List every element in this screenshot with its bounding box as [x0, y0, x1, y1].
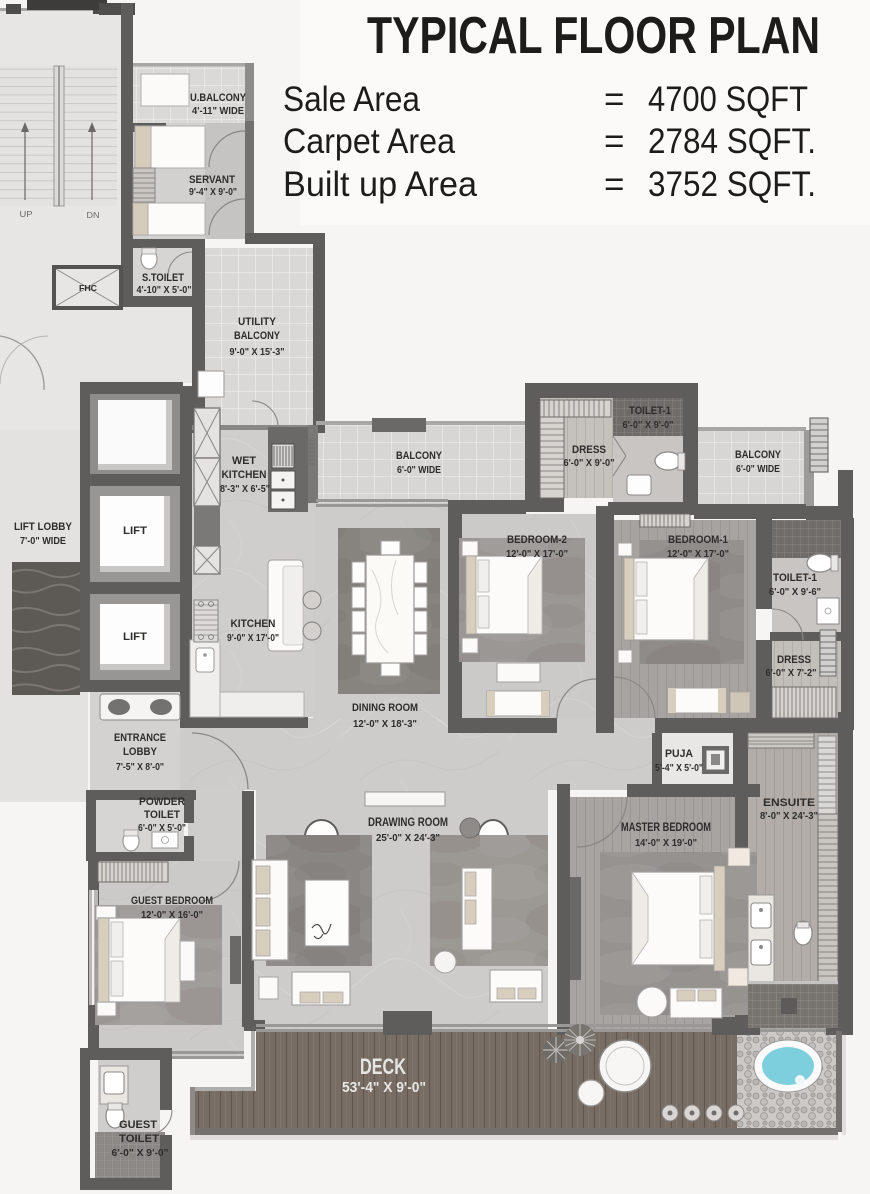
svg-text:DECK: DECK [360, 1054, 406, 1079]
svg-text:LIFT: LIFT [123, 631, 147, 643]
svg-text:5'-4" X 5'-0": 5'-4" X 5'-0" [655, 763, 703, 774]
svg-text:Carpet Area: Carpet Area [283, 122, 455, 161]
svg-text:POWDER: POWDER [139, 796, 185, 808]
svg-text:3752 SQFT.: 3752 SQFT. [648, 165, 816, 204]
svg-text:6'-0" X 7'-2": 6'-0" X 7'-2" [766, 668, 817, 679]
svg-text:6'-0" X 9'-0": 6'-0" X 9'-0" [564, 458, 615, 469]
svg-text:6'-0" X 5'-0": 6'-0" X 5'-0" [138, 823, 186, 834]
svg-text:PUJA: PUJA [665, 748, 693, 760]
svg-text:8'-3" X 6'-5": 8'-3" X 6'-5" [220, 484, 270, 495]
svg-text:9'-4" X 9'-0": 9'-4" X 9'-0" [189, 187, 237, 198]
svg-text:2784 SQFT.: 2784 SQFT. [648, 122, 816, 161]
svg-text:TOILET: TOILET [144, 809, 180, 821]
svg-text:ENTRANCE: ENTRANCE [114, 732, 166, 744]
svg-text:Sale Area: Sale Area [283, 80, 420, 119]
svg-text:6'-0" X 9'-0": 6'-0" X 9'-0" [112, 1147, 169, 1159]
svg-text:8'-0" X 24'-3": 8'-0" X 24'-3" [760, 811, 818, 822]
svg-text:LOBBY: LOBBY [123, 746, 158, 758]
svg-text:6'-0" X 9'-6": 6'-0" X 9'-6" [769, 587, 821, 598]
svg-text:U.BALCONY: U.BALCONY [190, 92, 247, 104]
svg-text:KITCHEN: KITCHEN [231, 618, 276, 630]
svg-text:TYPICAL FLOOR PLAN: TYPICAL FLOOR PLAN [367, 7, 820, 65]
svg-text:LIFT LOBBY: LIFT LOBBY [14, 521, 73, 533]
svg-text:BALCONY: BALCONY [735, 449, 782, 461]
svg-text:TOILET-1: TOILET-1 [629, 405, 671, 417]
svg-text:DN: DN [87, 211, 100, 220]
svg-text:DRESS: DRESS [572, 444, 606, 456]
svg-text:WET: WET [232, 455, 256, 467]
svg-text:DRESS: DRESS [777, 654, 811, 666]
svg-text:LIFT: LIFT [123, 525, 147, 537]
svg-text:14'-0" X 19'-0": 14'-0" X 19'-0" [635, 837, 697, 849]
svg-text:TOILET: TOILET [119, 1133, 159, 1145]
svg-text:BEDROOM-1: BEDROOM-1 [668, 534, 728, 546]
svg-text:6'-0" X 9'-0": 6'-0" X 9'-0" [623, 420, 674, 431]
svg-text:S.TOILET: S.TOILET [142, 272, 184, 284]
svg-text:UP: UP [20, 210, 33, 219]
svg-text:DINING ROOM: DINING ROOM [352, 702, 418, 714]
svg-text:12'-0" X 16'-0": 12'-0" X 16'-0" [141, 909, 203, 921]
svg-text:7'-5" X 8'-0": 7'-5" X 8'-0" [116, 762, 164, 773]
svg-text:9'-0" X 17'-0": 9'-0" X 17'-0" [227, 633, 279, 644]
svg-text:BEDROOM-2: BEDROOM-2 [507, 534, 567, 546]
svg-text:SERVANT: SERVANT [189, 174, 235, 186]
svg-text:BALCONY: BALCONY [396, 450, 443, 462]
svg-text:ENSUITE: ENSUITE [763, 797, 815, 809]
svg-text:Built up Area: Built up Area [283, 165, 478, 204]
svg-text:6'-0" WIDE: 6'-0" WIDE [736, 464, 780, 475]
svg-text:FHC: FHC [79, 283, 97, 293]
svg-text:25'-0" X 24'-3": 25'-0" X 24'-3" [376, 832, 440, 844]
svg-text:=: = [604, 122, 624, 161]
svg-text:7'-0" WIDE: 7'-0" WIDE [20, 536, 66, 547]
svg-text:12'-0" X 17'-0": 12'-0" X 17'-0" [667, 548, 729, 560]
svg-text:12'-0" X 18'-3": 12'-0" X 18'-3" [353, 718, 417, 730]
svg-text:4'-11" WIDE: 4'-11" WIDE [192, 106, 244, 117]
svg-text:GUEST: GUEST [119, 1119, 157, 1131]
svg-text:UTILITY: UTILITY [238, 316, 277, 328]
svg-text:DRAWING ROOM: DRAWING ROOM [368, 817, 448, 829]
svg-text:MASTER BEDROOM: MASTER BEDROOM [621, 822, 711, 834]
svg-text:53'-4" X 9'-0": 53'-4" X 9'-0" [342, 1079, 426, 1096]
svg-text:GUEST BEDROOM: GUEST BEDROOM [131, 895, 213, 907]
svg-text:12'-0" X 17'-0": 12'-0" X 17'-0" [506, 548, 568, 560]
svg-text:TOILET-1: TOILET-1 [773, 572, 817, 584]
svg-text:=: = [604, 80, 624, 119]
svg-text:9'-0" X 15'-3": 9'-0" X 15'-3" [230, 347, 285, 358]
svg-text:4700 SQFT: 4700 SQFT [648, 80, 808, 119]
svg-text:6'-0" WIDE: 6'-0" WIDE [397, 465, 441, 476]
svg-text:4'-10" X 5'-0": 4'-10" X 5'-0" [137, 285, 192, 296]
svg-text:=: = [604, 165, 624, 204]
svg-text:BALCONY: BALCONY [234, 330, 281, 342]
svg-text:KITCHEN: KITCHEN [222, 469, 267, 481]
